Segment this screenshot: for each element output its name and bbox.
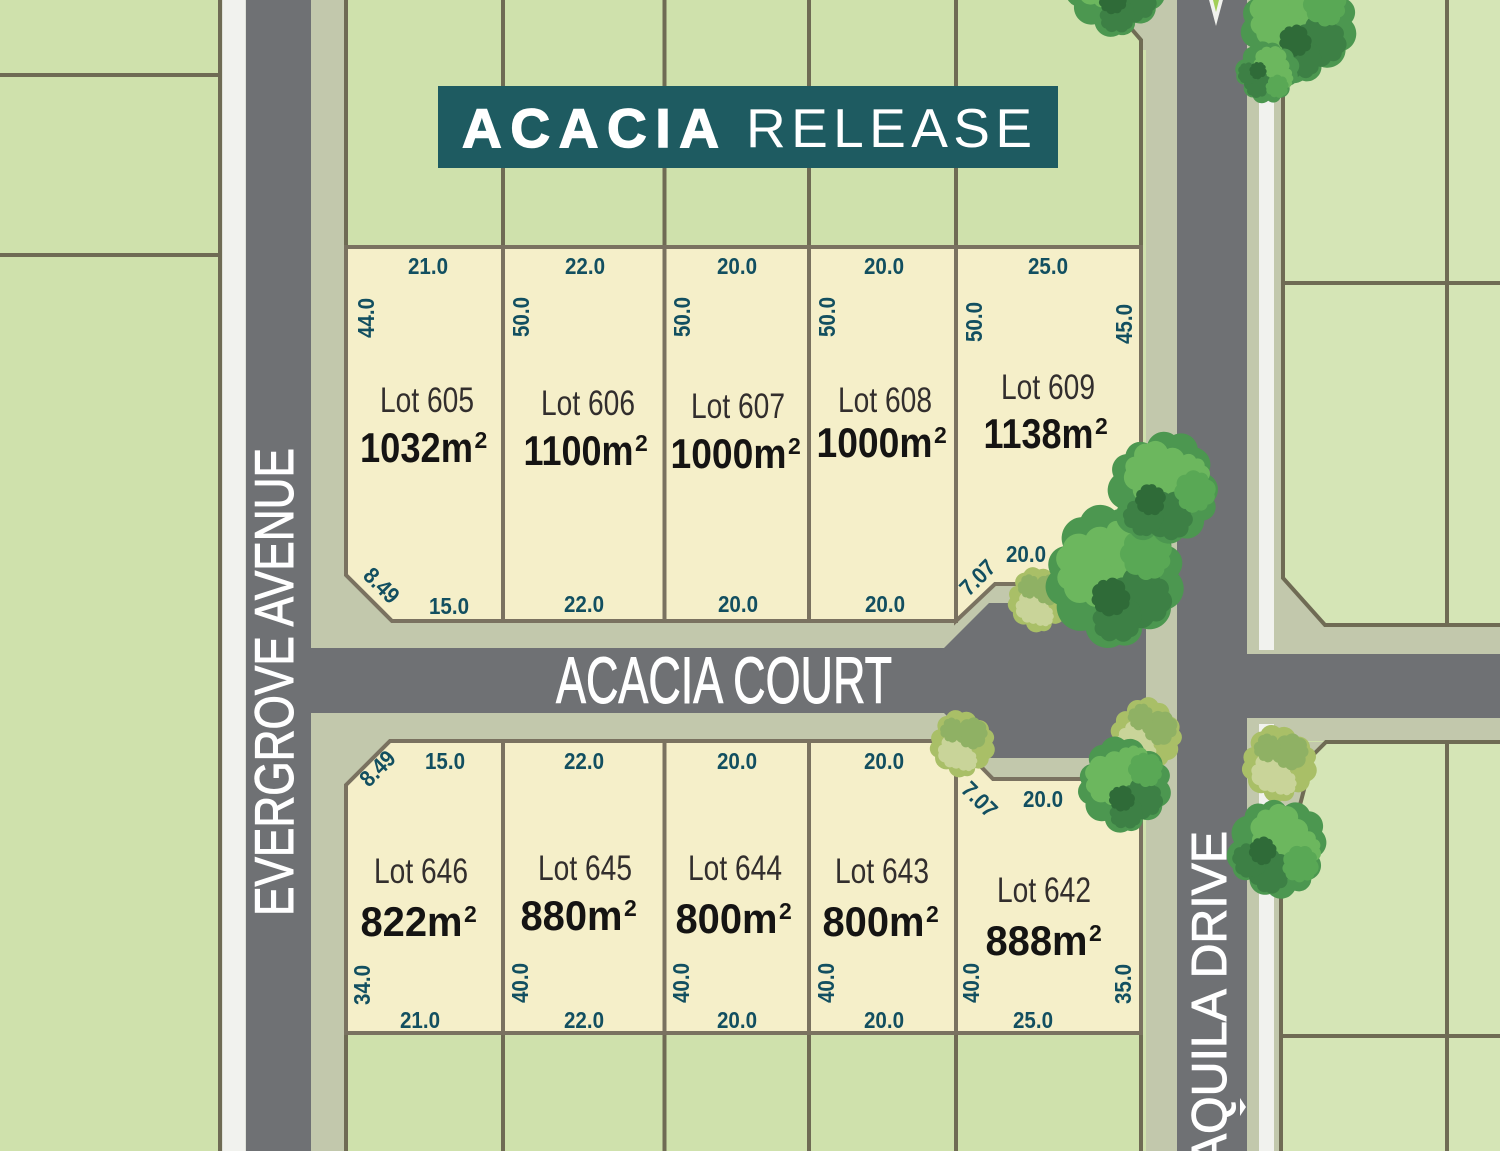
svg-text:15.0: 15.0 <box>429 593 469 619</box>
svg-text:ACACIA: ACACIA <box>462 97 719 159</box>
svg-text:40.0: 40.0 <box>668 963 694 1003</box>
svg-text:25.0: 25.0 <box>1013 1007 1053 1033</box>
svg-text:2: 2 <box>1095 413 1108 439</box>
svg-text:20.0: 20.0 <box>864 748 904 774</box>
svg-text:880m: 880m <box>521 892 623 939</box>
svg-text:1138m: 1138m <box>984 410 1094 457</box>
svg-text:Lot 646: Lot 646 <box>374 852 468 891</box>
svg-text:20.0: 20.0 <box>1006 541 1046 567</box>
svg-text:40.0: 40.0 <box>507 963 533 1003</box>
svg-text:2: 2 <box>788 433 801 459</box>
svg-text:ACACIA COURT: ACACIA COURT <box>556 643 892 717</box>
svg-text:822m: 822m <box>361 898 463 945</box>
svg-text:20.0: 20.0 <box>864 253 904 279</box>
svg-text:888m: 888m <box>986 917 1088 964</box>
svg-text:20.0: 20.0 <box>718 591 758 617</box>
svg-text:Lot 644: Lot 644 <box>688 849 782 888</box>
svg-text:22.0: 22.0 <box>564 1007 604 1033</box>
svg-text:2: 2 <box>475 427 488 453</box>
svg-text:35.0: 35.0 <box>1110 964 1136 1004</box>
svg-text:Lot 645: Lot 645 <box>538 849 632 888</box>
svg-text:50.0: 50.0 <box>508 297 534 337</box>
svg-text:22.0: 22.0 <box>565 253 605 279</box>
svg-text:2: 2 <box>926 901 939 927</box>
svg-text:50.0: 50.0 <box>669 297 695 337</box>
svg-text:40.0: 40.0 <box>958 963 984 1003</box>
svg-text:20.0: 20.0 <box>717 748 757 774</box>
svg-text:1000m: 1000m <box>671 430 787 477</box>
svg-text:22.0: 22.0 <box>564 748 604 774</box>
svg-text:EVERGROVE AVENUE: EVERGROVE AVENUE <box>243 448 305 916</box>
svg-text:Lot 605: Lot 605 <box>380 381 474 420</box>
svg-text:2: 2 <box>635 430 648 456</box>
svg-text:1100m: 1100m <box>524 427 634 474</box>
svg-text:2: 2 <box>934 422 947 448</box>
svg-text:Lot 608: Lot 608 <box>838 381 932 420</box>
svg-text:25.0: 25.0 <box>1028 253 1068 279</box>
svg-text:Lot 642: Lot 642 <box>997 871 1091 910</box>
svg-text:20.0: 20.0 <box>865 591 905 617</box>
svg-text:20.0: 20.0 <box>864 1007 904 1033</box>
svg-text:50.0: 50.0 <box>814 297 840 337</box>
svg-text:22.0: 22.0 <box>564 591 604 617</box>
svg-text:800m: 800m <box>823 898 925 945</box>
svg-text:21.0: 21.0 <box>400 1007 440 1033</box>
svg-text:1000m: 1000m <box>817 419 933 466</box>
svg-text:20.0: 20.0 <box>1023 786 1063 812</box>
svg-text:45.0: 45.0 <box>1111 304 1137 344</box>
svg-text:20.0: 20.0 <box>717 1007 757 1033</box>
svg-text:Lot 607: Lot 607 <box>691 387 785 426</box>
svg-text:2: 2 <box>624 895 637 921</box>
svg-text:34.0: 34.0 <box>349 965 375 1005</box>
svg-text:20.0: 20.0 <box>717 253 757 279</box>
svg-text:1032m: 1032m <box>360 424 473 471</box>
svg-text:40.0: 40.0 <box>813 963 839 1003</box>
svg-text:2: 2 <box>1089 920 1102 946</box>
svg-text:2: 2 <box>779 898 792 924</box>
svg-text:50.0: 50.0 <box>961 302 987 342</box>
svg-text:AQUILA DRIVE: AQUILA DRIVE <box>1183 831 1237 1151</box>
svg-text:21.0: 21.0 <box>408 253 448 279</box>
svg-text:2: 2 <box>464 901 477 927</box>
svg-text:15.0: 15.0 <box>425 748 465 774</box>
svg-text:Lot 606: Lot 606 <box>541 384 635 423</box>
svg-text:Lot 643: Lot 643 <box>835 852 929 891</box>
svg-text:Lot 609: Lot 609 <box>1001 368 1095 407</box>
svg-text:800m: 800m <box>676 895 778 942</box>
svg-text:44.0: 44.0 <box>353 298 379 338</box>
